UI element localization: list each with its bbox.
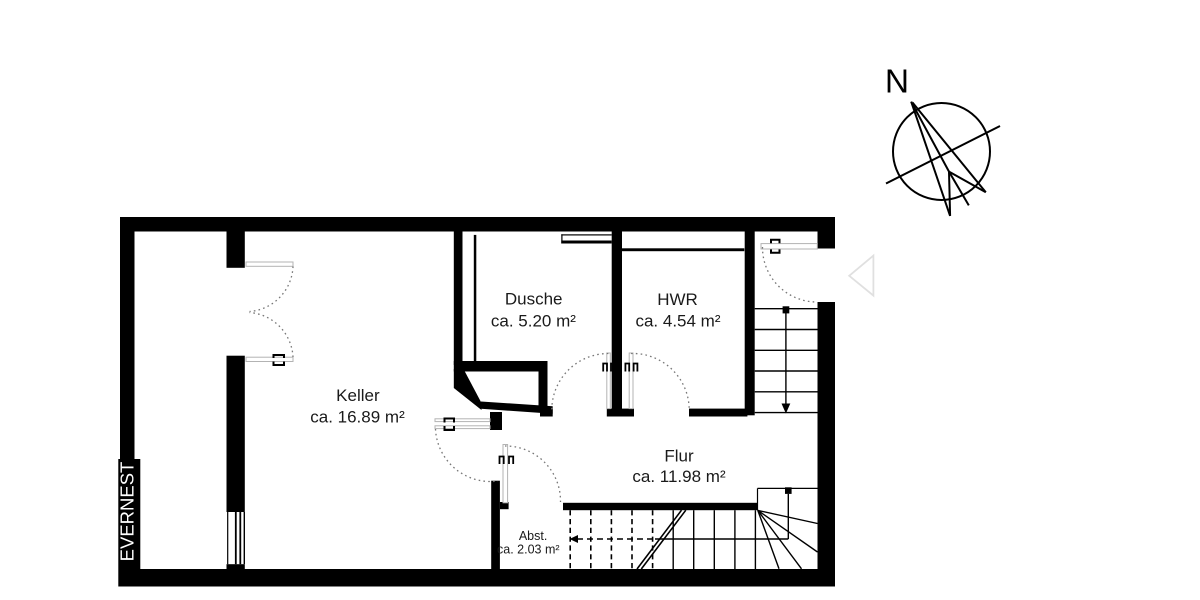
svg-text:ca. 11.98 m²: ca. 11.98 m² bbox=[632, 467, 726, 486]
svg-text:ca. 4.54 m²: ca. 4.54 m² bbox=[635, 312, 720, 331]
svg-text:HWR: HWR bbox=[657, 290, 698, 309]
svg-text:Dusche: Dusche bbox=[505, 289, 563, 308]
svg-text:Abst.: Abst. bbox=[519, 529, 548, 543]
svg-text:ca. 16.89 m²: ca. 16.89 m² bbox=[310, 408, 405, 427]
svg-text:EVERNEST: EVERNEST bbox=[117, 462, 138, 562]
svg-text:ca. 5.20 m²: ca. 5.20 m² bbox=[491, 312, 576, 331]
svg-text:ca. 2.03 m²: ca. 2.03 m² bbox=[497, 542, 560, 556]
svg-text:N: N bbox=[885, 64, 909, 101]
svg-text:Keller: Keller bbox=[336, 386, 380, 405]
svg-text:Flur: Flur bbox=[664, 447, 694, 466]
